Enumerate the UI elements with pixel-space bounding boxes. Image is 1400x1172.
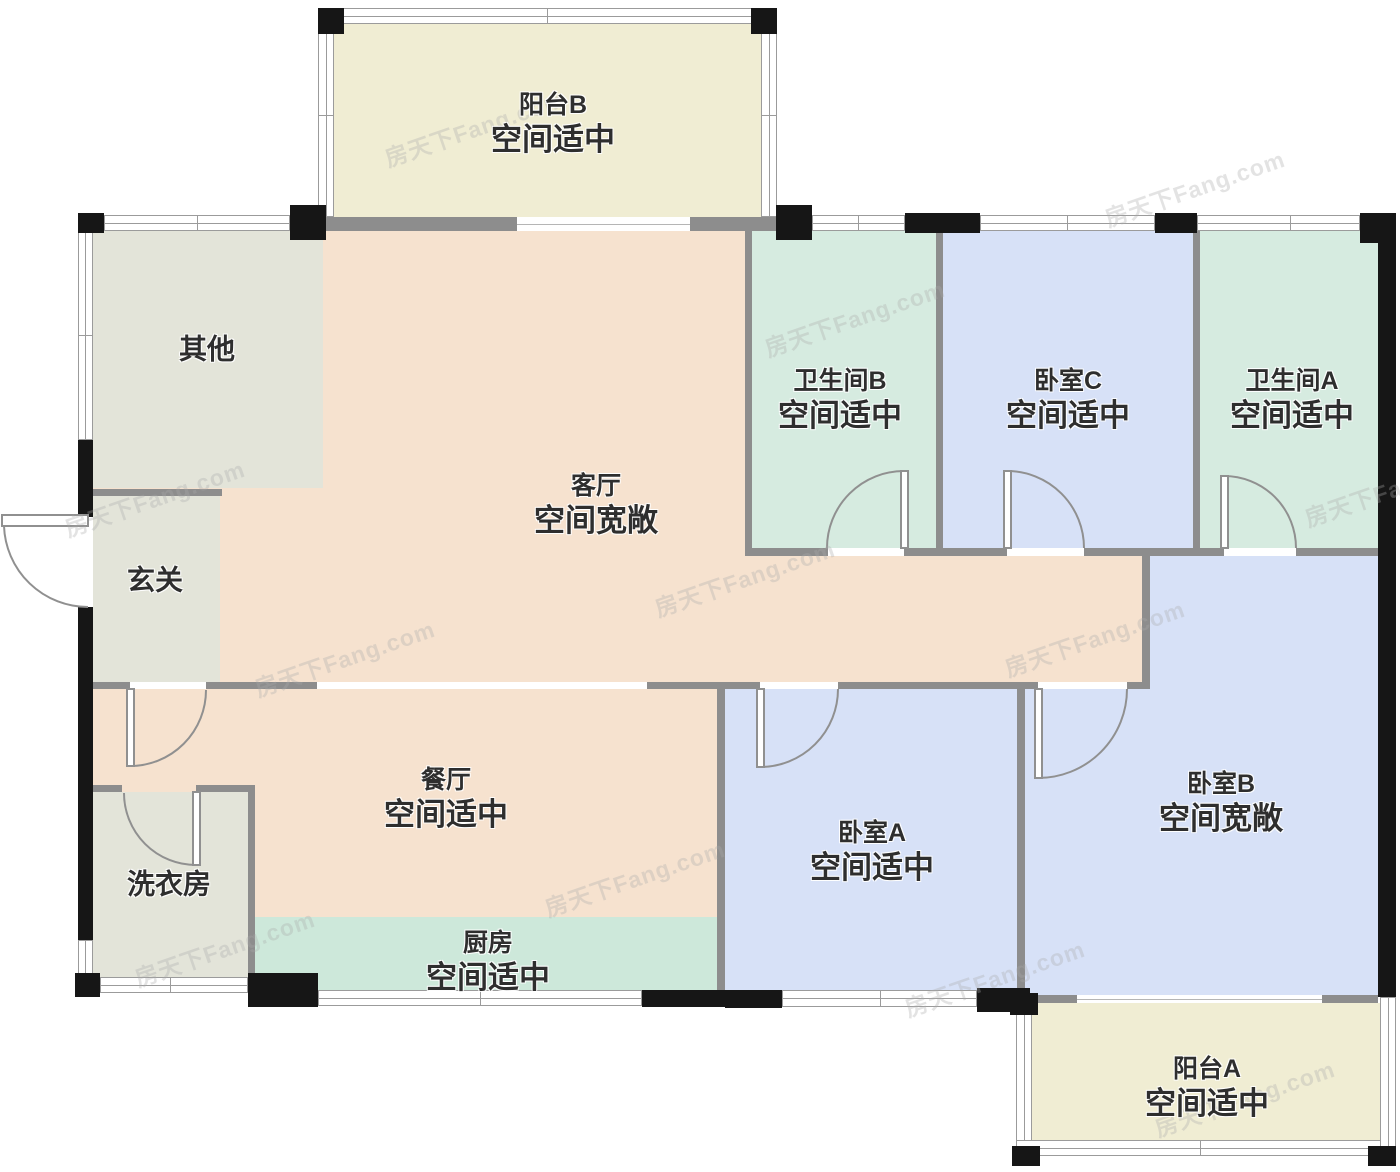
room-label-bedroom-a: 卧室A 空间适中 <box>810 818 934 886</box>
room-desc: 空间适中 <box>1006 397 1130 434</box>
room-label-balcony-b: 阳台B 空间适中 <box>491 90 615 158</box>
room-label-living: 客厅 空间宽敞 <box>534 471 658 539</box>
room-desc: 空间适中 <box>491 121 615 158</box>
door-arc <box>1007 471 1084 548</box>
door-leaf <box>1221 476 1228 548</box>
door-arc <box>1224 476 1296 548</box>
room-name: 客厅 <box>534 471 658 502</box>
room-label-kitchen: 厨房 空间适中 <box>426 928 550 996</box>
room-name: 洗衣房 <box>127 867 211 902</box>
room-name: 卧室B <box>1159 769 1283 800</box>
door-leaf <box>901 471 908 548</box>
room-name: 卫生间B <box>778 366 902 397</box>
room-desc: 空间宽敞 <box>534 502 658 539</box>
door-arc <box>827 471 904 548</box>
room-label-balcony-a: 阳台A 空间适中 <box>1145 1054 1269 1122</box>
door-leaf <box>1035 689 1042 778</box>
room-label-bath-b: 卫生间B 空间适中 <box>778 366 902 434</box>
room-name: 厨房 <box>426 928 550 959</box>
room-name: 餐厅 <box>384 765 508 796</box>
room-label-bath-a: 卫生间A 空间适中 <box>1230 366 1354 434</box>
room-label-laundry: 洗衣房 <box>127 867 211 902</box>
room-name: 阳台B <box>491 90 615 121</box>
door-leaf <box>127 689 134 766</box>
room-name: 卧室C <box>1006 366 1130 397</box>
room-desc: 空间适中 <box>778 397 902 434</box>
room-desc: 空间适中 <box>384 796 508 833</box>
door-leaf <box>193 792 200 865</box>
room-desc: 空间适中 <box>1230 397 1354 434</box>
room-name: 阳台A <box>1145 1054 1269 1085</box>
room-name: 其他 <box>179 332 235 367</box>
door-arc <box>760 689 838 767</box>
room-label-bedroom-c: 卧室C 空间适中 <box>1006 366 1130 434</box>
door-arc <box>1038 689 1127 778</box>
room-desc: 空间适中 <box>810 849 934 886</box>
door-arc <box>130 690 206 766</box>
room-label-other: 其他 <box>179 332 235 367</box>
room-label-bedroom-b: 卧室B 空间宽敞 <box>1159 769 1283 837</box>
room-desc: 空间适中 <box>1145 1085 1269 1122</box>
floorplan-canvas: 阳台B 空间适中 其他 玄关 客厅 空间宽敞 卫生间B 空间适中 卧室C 空间适… <box>0 0 1400 1172</box>
room-name: 玄关 <box>127 563 183 598</box>
room-label-dining: 餐厅 空间适中 <box>384 765 508 833</box>
door-leaf <box>757 689 764 767</box>
room-desc: 空间宽敞 <box>1159 800 1283 837</box>
room-label-entry: 玄关 <box>127 563 183 598</box>
door-leaf <box>1004 471 1011 548</box>
room-name: 卫生间A <box>1230 366 1354 397</box>
room-desc: 空间适中 <box>426 959 550 996</box>
room-name: 卧室A <box>810 818 934 849</box>
door-arc <box>124 793 196 865</box>
